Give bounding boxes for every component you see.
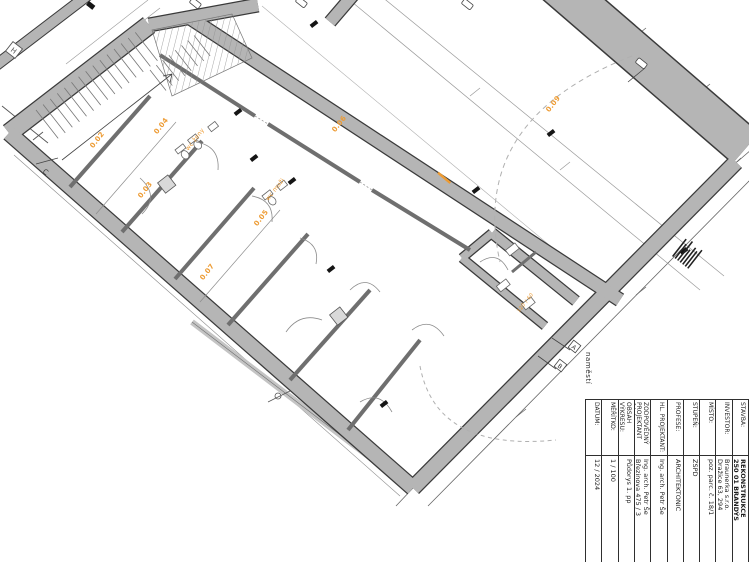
tb-value-line: 250 01 BRANDÝS — [733, 459, 739, 562]
tb-value: Ing. arch. Petr Še Březinova 475 / 3 — [635, 456, 650, 562]
tb-value: ARCHITEKTONIC — [668, 456, 683, 562]
tb-row-datum: DATUM: 12 / 2024 — [586, 400, 601, 562]
tb-label: STUPEŇ: — [684, 400, 699, 456]
tb-label: ZODPOVĚDNÝ PROJEKTANT ČÁSTI: — [635, 400, 650, 456]
tb-label-line: ZODPOVĚDNÝ — [642, 402, 649, 444]
tb-value-line: Braunerka s.r.o. — [723, 459, 731, 510]
tb-label: DATUM: — [586, 400, 601, 456]
shaft-boxes — [158, 175, 348, 325]
title-block: STAVBA: REKONSTRUKCE 250 01 BRANDÝS INVE… — [585, 399, 749, 562]
tb-label: MÍSTO: — [700, 400, 715, 456]
tb-label-line: PROJEKTANT ČÁSTI: — [635, 402, 642, 439]
tb-label: PROFESE: — [668, 400, 683, 456]
note-text-block — [672, 237, 703, 269]
tb-value: Půdorys 1. pp — [619, 456, 634, 562]
tb-row-misto: MÍSTO: poz. parc. č. 18/1 — [699, 400, 715, 562]
tb-label: INVESTOR: — [716, 400, 731, 456]
tb-label: HL. PROJEKTANT: — [651, 400, 666, 456]
tb-row-stavba: STAVBA: REKONSTRUKCE 250 01 BRANDÝS — [732, 400, 748, 562]
tb-value-line: Ing. arch. Petr Še — [642, 459, 650, 515]
tb-label: MĚŘÍTKO: — [602, 400, 617, 456]
tb-value: Ing. arch. Petr Še — [651, 456, 666, 562]
tb-value: poz. parc. č. 18/1 — [700, 456, 715, 562]
tb-value: REKONSTRUKCE 250 01 BRANDÝS — [733, 456, 748, 562]
tb-label: STAVBA: — [733, 400, 748, 456]
tb-value: 1 / 100 — [602, 456, 617, 562]
tb-row-zodpovedny: ZODPOVĚDNÝ PROJEKTANT ČÁSTI: Ing. arch. … — [634, 400, 650, 562]
tb-row-meritko: MĚŘÍTKO: 1 / 100 — [601, 400, 617, 562]
tb-row-obsah: OBSAH VÝKRESU: Půdorys 1. pp — [618, 400, 634, 562]
tb-value-line: REKONSTRUKCE — [740, 459, 748, 518]
tb-value: Braunerka s.r.o. Dražice 63, 294 — [716, 456, 731, 562]
tb-row-stupen: STUPEŇ: ZSPD — [683, 400, 699, 562]
tb-row-hl-projektant: HL. PROJEKTANT: Ing. arch. Petr Še — [650, 400, 666, 562]
drawing-sheet: H A B C 0.02 0.04 wc ženy 0.03 wc muži 0… — [0, 0, 749, 562]
street-label: naměstí — [584, 352, 592, 384]
stair-treads-flight1 — [36, 32, 157, 138]
tb-row-profese: PROFESE: ARCHITEKTONIC — [667, 400, 683, 562]
tb-value-line: Dražice 63, 294 — [716, 459, 722, 562]
tb-value: 12 / 2024 — [586, 456, 601, 562]
tb-row-investor: INVESTOR: Braunerka s.r.o. Dražice 63, 2… — [715, 400, 731, 562]
tb-label: OBSAH VÝKRESU: — [619, 400, 634, 456]
tb-value: ZSPD — [684, 456, 699, 562]
tb-value-line: Březinova 475 / 3 — [635, 459, 641, 562]
